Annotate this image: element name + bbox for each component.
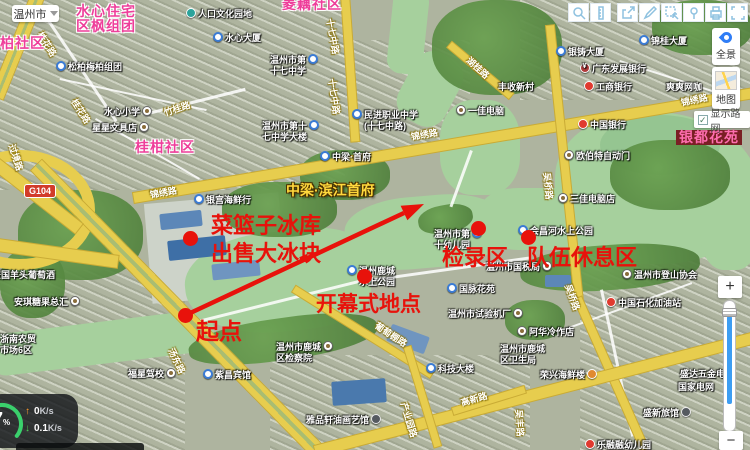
poi-text: 一佳电脑 — [468, 106, 504, 117]
road-name-label: 竹桂路 — [162, 98, 192, 119]
panorama-label: 全景 — [716, 46, 736, 61]
poi-text: 中国石化加油站 — [618, 298, 681, 309]
poi-label[interactable]: 温州市第十七中学大楼 — [262, 121, 319, 143]
poi-label[interactable]: 丰收新村 — [498, 82, 534, 93]
zoom-slider-handle[interactable] — [722, 308, 737, 317]
poi-icon — [166, 368, 176, 378]
draw-button[interactable] — [639, 3, 660, 22]
poi-text: 温州市第十七中学大楼 — [262, 121, 307, 143]
annotation-ice-warehouse: 菜篮子冰库 出售大冰块 — [211, 212, 321, 268]
poi-text: 爽爽网咖 — [666, 82, 702, 93]
poi-label[interactable]: 浙南农贸市场6区 — [0, 334, 36, 356]
poi-text: 紫昌宾馆 — [215, 370, 251, 381]
share-button[interactable] — [617, 3, 638, 22]
poi-label[interactable]: 荣兴海鲜楼 — [540, 370, 597, 381]
road-name-label: 十七中路 — [326, 78, 344, 115]
district-name-label: 菱藕社区 — [282, 0, 342, 12]
poi-text: 福星驾校 — [128, 369, 164, 380]
poi-icon — [585, 439, 595, 449]
poi-icon — [517, 326, 527, 336]
poi-text: 温州市鹿城区检察院 — [276, 342, 321, 364]
panorama-pin-icon — [718, 30, 734, 46]
poi-label[interactable]: 乐融融幼儿园 — [585, 440, 651, 450]
poi-text: 广东发展银行 — [592, 64, 646, 75]
poi-label[interactable]: 广东发展银行 — [580, 64, 646, 75]
poi-text: 三佳电脑店 — [570, 194, 615, 205]
poi-icon — [556, 46, 566, 56]
poi-text: 安琪糖果总汇 — [14, 297, 68, 308]
annotation-opening-ceremony: 开幕式地点 — [316, 288, 421, 318]
poi-text: 乐融融幼儿园 — [597, 440, 651, 450]
poi-text: 锦桂大厦 — [651, 36, 687, 47]
poi-icon — [681, 407, 691, 417]
poi-label[interactable]: 科技大楼 — [426, 364, 474, 375]
road-name-label: 十七中路 — [324, 17, 343, 55]
download-speed: ↓ 0.1K/s — [25, 423, 62, 434]
poi-icon — [606, 297, 616, 307]
poi-icon — [580, 63, 590, 73]
poi-text: 雅品轩油画艺馆 — [306, 415, 369, 426]
poi-icon — [320, 151, 330, 161]
poi-icon — [56, 61, 66, 71]
down-arrow-icon: ↓ — [25, 423, 30, 434]
poi-icon — [70, 296, 80, 306]
poi-icon — [587, 369, 597, 379]
city-selector-label: 温州市 — [14, 6, 47, 22]
poi-icon — [308, 54, 318, 64]
zoom-search-icon — [572, 6, 586, 20]
poi-label[interactable]: 锦桂大厦 — [639, 36, 687, 47]
poi-label[interactable]: 银铸大厦 — [556, 47, 604, 58]
zoom-in-button[interactable]: + — [718, 276, 742, 298]
district-name-label: 桂柑社区 — [135, 140, 195, 155]
share-icon — [621, 6, 635, 20]
road-name-label: 吴桥路 — [562, 282, 583, 312]
poi-label[interactable]: 爽爽网咖 — [666, 82, 702, 93]
poi-icon — [347, 265, 357, 275]
poi-text: 国家电网 — [678, 382, 714, 393]
poi-text: 温州市鹿城区卫生局 — [500, 344, 545, 366]
poi-text: 会昌河水上公园 — [530, 226, 593, 237]
poi-label[interactable]: 国家电网 — [678, 382, 714, 393]
poi-text: 法国羊头葡萄酒 — [0, 270, 55, 281]
poi-label[interactable]: 雅品轩油画艺馆 — [306, 415, 381, 426]
poi-text: 银宫海鲜行 — [206, 195, 251, 206]
fullscreen-icon — [731, 6, 745, 20]
district-name-label: 松柏社区 — [0, 36, 45, 51]
poi-label[interactable]: 紫昌宾馆 — [203, 370, 251, 381]
ruler-icon — [594, 6, 608, 20]
poi-label[interactable]: 三佳电脑店 — [558, 194, 615, 205]
zoom-slider-fill — [727, 316, 732, 404]
poi-label[interactable]: 工商银行 — [584, 82, 632, 93]
road-name-label: 高新路 — [459, 389, 489, 409]
poi-icon — [203, 369, 213, 379]
poi-label[interactable]: 温州市鹿城区检察院 — [276, 342, 333, 364]
poi-label[interactable]: 阿华冷作店 — [517, 327, 574, 338]
poi-icon — [513, 308, 523, 318]
roadnet-label: 显示路网 — [711, 105, 746, 135]
map-application-window: 人口文化园地水心大厦松柏梅柏组团水心小学星星文具店温州市第十七中学温州市第十七中… — [0, 0, 750, 450]
poi-label[interactable]: 温州市鹿城区卫生局 — [500, 344, 545, 366]
select-area-icon — [665, 6, 679, 20]
marker-icon — [687, 6, 701, 20]
road-name-label: 锦绣路 — [680, 91, 709, 109]
print-button[interactable] — [705, 3, 726, 22]
poi-label[interactable]: 水心小学 — [104, 107, 152, 118]
poi-text: 温州市第十七中学 — [270, 55, 306, 77]
zoom-out-button[interactable]: − — [719, 431, 743, 450]
monitor-percent: 7% — [0, 409, 10, 430]
upload-speed: ↑ 0K/s — [25, 406, 54, 417]
poi-text: 阿华冷作店 — [529, 327, 574, 338]
road-name-label: 锦绣路 — [149, 183, 178, 200]
poi-icon — [371, 414, 381, 424]
poi-icon — [352, 109, 362, 119]
poi-label[interactable]: 银宫海鲜行 — [194, 195, 251, 206]
annotation-dot-start — [178, 308, 193, 323]
poi-text: 松柏梅柏组团 — [68, 62, 122, 73]
poi-icon — [558, 193, 568, 203]
poi-text: 欧伯特自动门 — [576, 151, 630, 162]
poi-icon — [186, 8, 196, 18]
poi-label[interactable]: 温州市第十七中学 — [270, 55, 318, 77]
poi-label[interactable]: 国脉花苑 — [447, 284, 495, 295]
poi-label[interactable]: 盛达五金电 — [680, 369, 725, 380]
annotation-start-point: 起点 — [196, 312, 242, 346]
checkbox-checked-icon[interactable]: ✓ — [698, 115, 708, 125]
annotation-dot-opening — [357, 269, 372, 284]
poi-label[interactable]: 中国石化加油站 — [606, 298, 681, 309]
poi-icon — [323, 341, 333, 351]
poi-label[interactable]: 盛新旅馆 — [643, 408, 691, 419]
annotation-dot-checkin — [471, 221, 486, 236]
road-name-label: 葡萄棚路 — [372, 319, 409, 350]
chevron-down-icon — [50, 11, 58, 16]
map-thumbnail-icon — [715, 71, 737, 90]
poi-icon — [584, 81, 594, 91]
poi-text: 中国银行 — [590, 120, 626, 131]
poi-text: 人口文化园地 — [198, 9, 252, 20]
pencil-icon — [643, 6, 657, 20]
district-name-label: 水心住宅区枫组团 — [76, 4, 136, 35]
poi-label[interactable]: 松柏梅柏组团 — [56, 62, 122, 73]
annotation-dot-ice — [183, 231, 198, 246]
poi-label[interactable]: 中梁·首府 — [320, 152, 371, 163]
poi-icon — [456, 105, 466, 115]
road-name-label: 吴桥路 — [541, 172, 557, 200]
up-arrow-icon: ↑ — [25, 406, 30, 417]
poi-label[interactable]: 一佳电脑 — [456, 106, 504, 117]
panorama-button[interactable]: 全景 — [712, 28, 740, 65]
poi-text: 盛达五金电 — [680, 369, 725, 380]
roadnet-toggle[interactable]: ✓ 显示路网 — [694, 111, 750, 128]
poi-text: 中梁·首府 — [332, 152, 371, 163]
poi-label[interactable]: 欧伯特自动门 — [564, 151, 630, 162]
poi-text: 银铸大厦 — [568, 47, 604, 58]
poi-icon — [639, 35, 649, 45]
poi-icon — [194, 194, 204, 204]
poi-icon — [142, 106, 152, 116]
map-mode-button[interactable]: 地图 — [712, 67, 740, 109]
road-name-label: 产业园路 — [398, 401, 421, 439]
poi-text: 荣兴海鲜楼 — [540, 370, 585, 381]
poi-icon — [309, 120, 319, 130]
poi-icon — [564, 150, 574, 160]
map-mode-label: 地图 — [716, 91, 736, 106]
poi-label[interactable]: 人口文化园地 — [186, 9, 252, 20]
poi-text: 温州市试验机厂 — [448, 309, 511, 320]
annotation-checkin-area: 检录区 — [442, 240, 508, 272]
city-selector[interactable]: 温州市 — [12, 5, 59, 22]
poi-text: 工商银行 — [596, 82, 632, 93]
poi-text: 民进职业中学(十七中路) — [364, 110, 418, 132]
poi-label[interactable]: 安琪糖果总汇 — [14, 297, 80, 308]
poi-icon — [578, 119, 588, 129]
developer-ad-label[interactable]: 中梁·滨江首府 — [286, 180, 375, 200]
road-name-label: 湖桂路 — [464, 54, 493, 82]
poi-icon — [447, 283, 457, 293]
poi-text: 浙南农贸市场6区 — [0, 334, 36, 356]
road-name-label: 吴丰路 — [513, 409, 528, 437]
printer-icon — [709, 6, 723, 20]
poi-icon — [426, 363, 436, 373]
poi-icon — [213, 32, 223, 42]
annotation-rest-area: 队伍休息区 — [527, 240, 637, 272]
poi-label[interactable]: 中国银行 — [578, 120, 626, 131]
map-label-layer: 人口文化园地水心大厦松柏梅柏组团水心小学星星文具店温州市第十七中学温州市第十七中… — [0, 0, 750, 450]
road-name-label: 过境路 — [6, 142, 27, 172]
map-toolbar — [568, 3, 748, 22]
poi-label[interactable]: 民进职业中学(十七中路) — [352, 110, 418, 132]
poi-text: 科技大楼 — [438, 364, 474, 375]
select-area-button[interactable] — [661, 3, 682, 22]
measure-button[interactable] — [590, 3, 611, 22]
poi-text: 温州市登山协会 — [634, 270, 697, 281]
fullscreen-button[interactable] — [727, 3, 748, 22]
zoom-search-button[interactable] — [568, 3, 589, 22]
poi-text: 丰收新村 — [498, 82, 534, 93]
road-name-label: 桂花路 — [68, 96, 93, 126]
overlay-bottom-bar[interactable] — [16, 443, 144, 450]
poi-label[interactable]: 温州市试验机厂 — [448, 309, 523, 320]
poi-label[interactable]: 法国羊头葡萄酒 — [0, 270, 55, 281]
poi-text: 国脉花苑 — [459, 284, 495, 295]
poi-label[interactable]: 福星驾校 — [128, 369, 176, 380]
poi-text: 水心小学 — [104, 107, 140, 118]
marker-button[interactable] — [683, 3, 704, 22]
poi-text: 星星文具店 — [92, 123, 137, 134]
poi-text: 水心大厦 — [225, 33, 261, 44]
g104-road-shield: G104 — [24, 184, 56, 198]
poi-icon — [139, 122, 149, 132]
poi-label[interactable]: 水心大厦 — [213, 33, 261, 44]
poi-label[interactable]: 星星文具店 — [92, 123, 149, 134]
poi-text: 盛新旅馆 — [643, 408, 679, 419]
